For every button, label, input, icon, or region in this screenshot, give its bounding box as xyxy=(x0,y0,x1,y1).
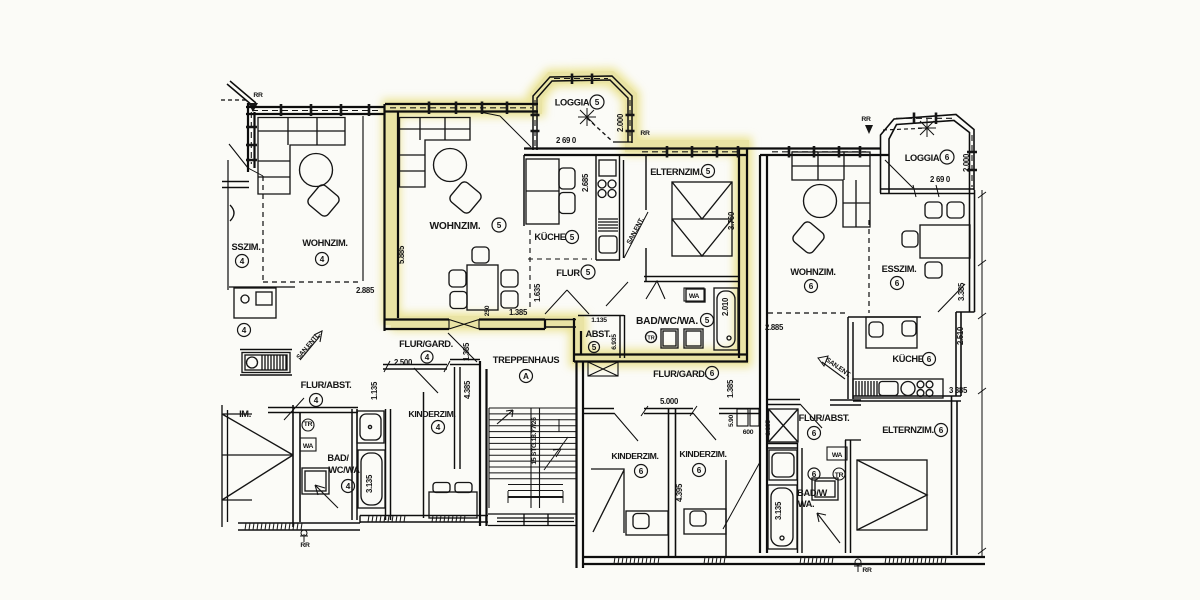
svg-text:6.935: 6.935 xyxy=(611,334,618,350)
svg-text:3.385: 3.385 xyxy=(957,282,966,301)
svg-text:4.385: 4.385 xyxy=(463,380,472,399)
svg-text:ABST.: ABST. xyxy=(585,329,610,339)
svg-text:FLUR/GARD.: FLUR/GARD. xyxy=(653,369,707,379)
svg-text:KINDERZIM.: KINDERZIM. xyxy=(611,451,658,461)
svg-text:4: 4 xyxy=(242,326,247,335)
svg-text:2.885: 2.885 xyxy=(356,286,375,295)
svg-text:ELTERNZIM.: ELTERNZIM. xyxy=(650,167,702,177)
svg-text:KINDERZIM.: KINDERZIM. xyxy=(679,449,726,459)
svg-text:5: 5 xyxy=(706,167,711,176)
svg-text:6: 6 xyxy=(639,467,644,476)
svg-text:6: 6 xyxy=(895,279,900,288)
svg-text:600: 600 xyxy=(743,429,754,436)
svg-text:2 69 0: 2 69 0 xyxy=(556,136,577,145)
svg-text:KÜCHE: KÜCHE xyxy=(534,232,565,242)
svg-text:TR: TR xyxy=(835,472,844,479)
svg-text:ESSZIM.: ESSZIM. xyxy=(882,264,917,274)
svg-text:5: 5 xyxy=(586,268,591,277)
svg-text:TR: TR xyxy=(304,421,313,428)
svg-text:1.135: 1.135 xyxy=(370,381,379,400)
svg-text:WC/WA: WC/WA xyxy=(328,465,360,475)
svg-text:BAD/W: BAD/W xyxy=(797,488,827,498)
svg-text:TR: TR xyxy=(647,336,654,342)
svg-text:5.885: 5.885 xyxy=(397,245,406,264)
svg-text:2 69 0: 2 69 0 xyxy=(930,175,951,184)
svg-text:WOHNZIM.: WOHNZIM. xyxy=(429,221,480,232)
svg-text:WA: WA xyxy=(832,452,843,459)
svg-text:4: 4 xyxy=(320,255,325,264)
svg-text:RR: RR xyxy=(300,542,310,549)
svg-text:WA: WA xyxy=(303,443,314,450)
svg-text:4: 4 xyxy=(314,396,319,405)
svg-text:5.90: 5.90 xyxy=(728,414,735,427)
svg-text:WA: WA xyxy=(689,293,700,300)
svg-text:1.385: 1.385 xyxy=(726,379,735,398)
svg-text:6: 6 xyxy=(812,429,817,438)
svg-text:5: 5 xyxy=(705,316,710,325)
svg-text:3.135: 3.135 xyxy=(774,501,783,520)
svg-text:6: 6 xyxy=(809,282,814,291)
svg-text:WOHNZIM.: WOHNZIM. xyxy=(790,267,835,277)
svg-text:2.000: 2.000 xyxy=(616,113,625,132)
svg-text:6: 6 xyxy=(939,426,944,435)
svg-text:KINDERZIM.: KINDERZIM. xyxy=(408,409,455,419)
svg-text:TREPPENHAUS: TREPPENHAUS xyxy=(493,355,560,365)
svg-text:FLUR/ABST.: FLUR/ABST. xyxy=(799,413,850,423)
svg-text:RR: RR xyxy=(253,92,263,99)
svg-text:1.135: 1.135 xyxy=(765,420,772,436)
svg-text:4: 4 xyxy=(346,482,351,491)
svg-text:3.760: 3.760 xyxy=(727,211,736,230)
svg-text:5: 5 xyxy=(592,343,597,352)
svg-text:6: 6 xyxy=(945,153,950,162)
svg-text:6: 6 xyxy=(710,369,715,378)
svg-text:5: 5 xyxy=(497,221,502,230)
svg-text:RR: RR xyxy=(861,116,871,123)
svg-text:6: 6 xyxy=(927,355,932,364)
svg-text:WA.: WA. xyxy=(798,499,815,509)
svg-text:1.135: 1.135 xyxy=(591,317,607,324)
svg-text:4: 4 xyxy=(436,423,441,432)
svg-text:2.010: 2.010 xyxy=(721,297,730,316)
svg-text:250: 250 xyxy=(484,305,491,316)
svg-text:3 385: 3 385 xyxy=(949,386,968,395)
svg-text:2.000: 2.000 xyxy=(962,153,971,172)
svg-text:ELTERNZIM.: ELTERNZIM. xyxy=(882,425,934,435)
svg-text:BAD/: BAD/ xyxy=(327,453,349,463)
svg-text:A: A xyxy=(523,372,529,381)
svg-text:2.885: 2.885 xyxy=(765,323,784,332)
svg-text:5.000: 5.000 xyxy=(660,397,679,406)
svg-text:IM.: IM. xyxy=(239,409,251,419)
svg-text:4: 4 xyxy=(240,257,245,266)
svg-text:5: 5 xyxy=(570,233,575,242)
svg-text:FLUR/ABST.: FLUR/ABST. xyxy=(301,380,352,390)
svg-text:LOGGIA: LOGGIA xyxy=(905,153,940,163)
svg-text:1.635: 1.635 xyxy=(533,283,542,302)
svg-text:4: 4 xyxy=(425,353,430,362)
svg-text:WOHNZIM.: WOHNZIM. xyxy=(302,238,347,248)
svg-text:1.385: 1.385 xyxy=(462,342,471,361)
svg-text:15 STG.18.77/26: 15 STG.18.77/26 xyxy=(531,417,538,465)
svg-text:6: 6 xyxy=(697,466,702,475)
svg-text:2.685: 2.685 xyxy=(581,173,590,192)
svg-text:BAD/WC/WA.: BAD/WC/WA. xyxy=(636,316,698,327)
svg-text:RR: RR xyxy=(640,130,650,137)
svg-text:4.395: 4.395 xyxy=(675,483,684,502)
svg-text:1.385: 1.385 xyxy=(509,308,528,317)
svg-text:KÜCHE: KÜCHE xyxy=(892,354,923,364)
svg-text:2.510: 2.510 xyxy=(956,326,965,345)
svg-text:3.135: 3.135 xyxy=(365,474,374,493)
svg-text:SSZIM.: SSZIM. xyxy=(232,242,261,252)
svg-text:FLUR/GARD.: FLUR/GARD. xyxy=(399,339,453,349)
svg-text:FLUR: FLUR xyxy=(556,268,580,278)
svg-text:2.500: 2.500 xyxy=(394,358,413,367)
svg-text:LOGGIA: LOGGIA xyxy=(555,98,590,108)
svg-text:6: 6 xyxy=(812,470,817,479)
svg-text:RR: RR xyxy=(862,567,872,574)
svg-text:5: 5 xyxy=(595,98,600,107)
